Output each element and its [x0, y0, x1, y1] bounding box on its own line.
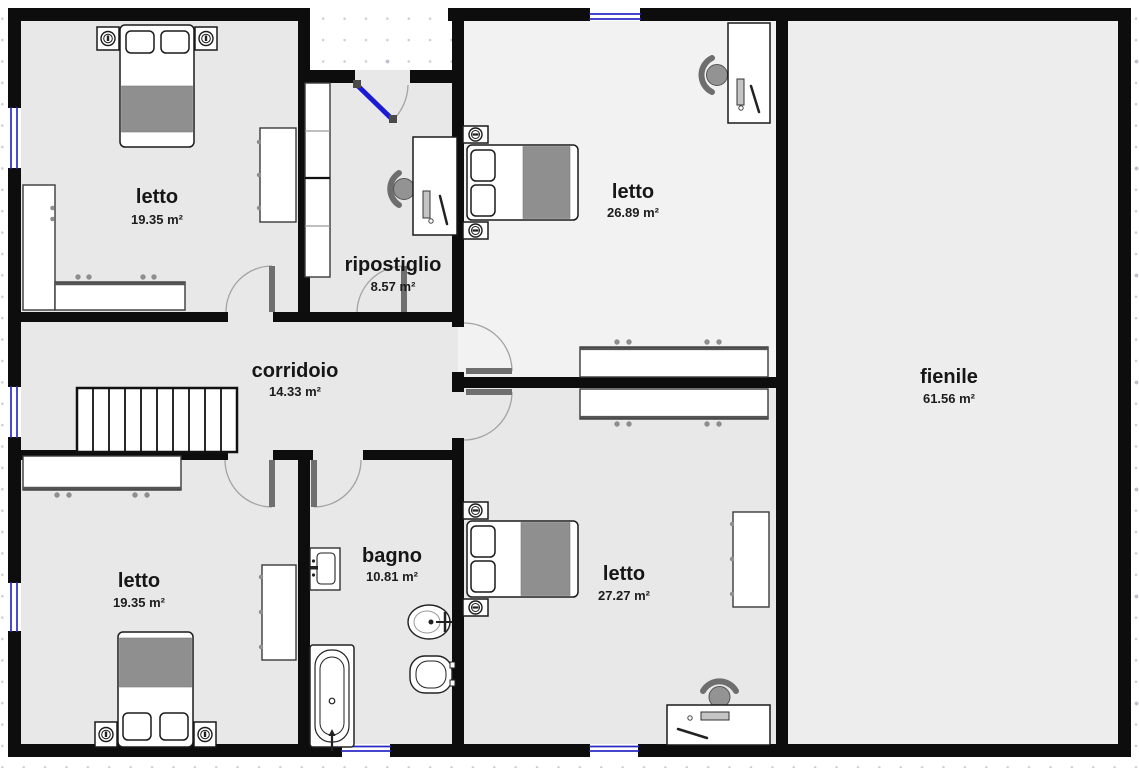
- window[interactable]: [590, 744, 638, 757]
- wall-segment: [452, 438, 464, 744]
- furniture-bed-top-left[interactable]: [120, 25, 194, 147]
- furniture-bed-bottom-middle[interactable]: [467, 521, 578, 597]
- room-label-letto-bottom-middle: letto: [603, 563, 645, 585]
- furniture-nightstand-lamp[interactable]: [195, 27, 217, 50]
- wall-segment: [638, 744, 1131, 757]
- room-area-letto-bottom-left: 19.35 m²: [113, 595, 166, 610]
- floor-plan: letto 19.35 m² ripostiglio 8.57 m² letto…: [0, 0, 1139, 768]
- room-area-corridoio: 14.33 m²: [269, 384, 322, 399]
- furniture-nightstand-lamp[interactable]: [463, 126, 488, 143]
- wall-segment: [8, 8, 310, 21]
- furniture-wardrobe[interactable]: [259, 565, 296, 660]
- window[interactable]: [8, 108, 21, 168]
- furniture-nightstand-lamp[interactable]: [463, 502, 488, 519]
- wall-segment: [298, 450, 310, 744]
- room-label-letto-bottom-left: letto: [118, 570, 160, 592]
- room-area-fienile: 61.56 m²: [923, 391, 976, 406]
- wall-segment: [640, 8, 1131, 21]
- wall-segment: [8, 631, 21, 757]
- wall-segment: [8, 8, 21, 108]
- window[interactable]: [8, 387, 21, 437]
- furniture-wardrobe[interactable]: [730, 512, 769, 607]
- fixture-toilet[interactable]: [410, 656, 455, 693]
- wall-segment: [448, 8, 590, 21]
- threshold-entry: [355, 70, 410, 84]
- room-area-bagno: 10.81 m²: [366, 569, 419, 584]
- furniture-nightstand-lamp[interactable]: [97, 27, 119, 50]
- room-label-ripostiglio: ripostiglio: [345, 254, 442, 276]
- wall-segment: [776, 8, 788, 757]
- furniture-nightstand-lamp[interactable]: [463, 222, 488, 239]
- room-area-letto-top-left: 19.35 m²: [131, 212, 184, 227]
- room-area-letto-top-middle: 26.89 m²: [607, 205, 660, 220]
- window[interactable]: [8, 583, 21, 631]
- room-label-corridoio: corridoio: [252, 360, 339, 382]
- fixture-bathtub[interactable]: [310, 645, 354, 751]
- room-label-bagno: bagno: [362, 545, 422, 567]
- fixture-sink[interactable]: [310, 548, 340, 590]
- threshold-letto-tl: [228, 310, 273, 322]
- wall-segment: [390, 744, 590, 757]
- room-label-fienile: fienile: [920, 366, 978, 388]
- floor-plan-canvas[interactable]: letto 19.35 m² ripostiglio 8.57 m² letto…: [0, 0, 1139, 768]
- furniture-nightstand-lamp[interactable]: [463, 599, 488, 616]
- furniture-bed-top-middle[interactable]: [467, 145, 578, 220]
- staircase[interactable]: [77, 388, 237, 452]
- furniture-bookshelf[interactable]: [305, 83, 330, 277]
- room-area-letto-bottom-middle: 27.27 m²: [598, 588, 651, 603]
- wall-segment: [273, 312, 452, 322]
- furniture-nightstand-lamp[interactable]: [95, 722, 117, 747]
- room-label-letto-top-left: letto: [136, 186, 178, 208]
- wall-segment: [452, 377, 788, 388]
- room-area-ripostiglio: 8.57 m²: [371, 279, 416, 294]
- window[interactable]: [590, 8, 640, 21]
- furniture-bed-bottom-left[interactable]: [118, 632, 193, 747]
- furniture-wardrobe[interactable]: [257, 128, 296, 222]
- wall-segment: [8, 168, 21, 387]
- wall-segment: [8, 312, 228, 322]
- furniture-cabinet[interactable]: [23, 185, 55, 310]
- wall-segment: [1118, 8, 1131, 757]
- furniture-nightstand-lamp[interactable]: [194, 722, 216, 747]
- wall-segment: [363, 450, 452, 460]
- wall-segment: [310, 70, 355, 83]
- room-label-letto-top-middle: letto: [612, 181, 654, 203]
- wall-segment: [410, 70, 452, 83]
